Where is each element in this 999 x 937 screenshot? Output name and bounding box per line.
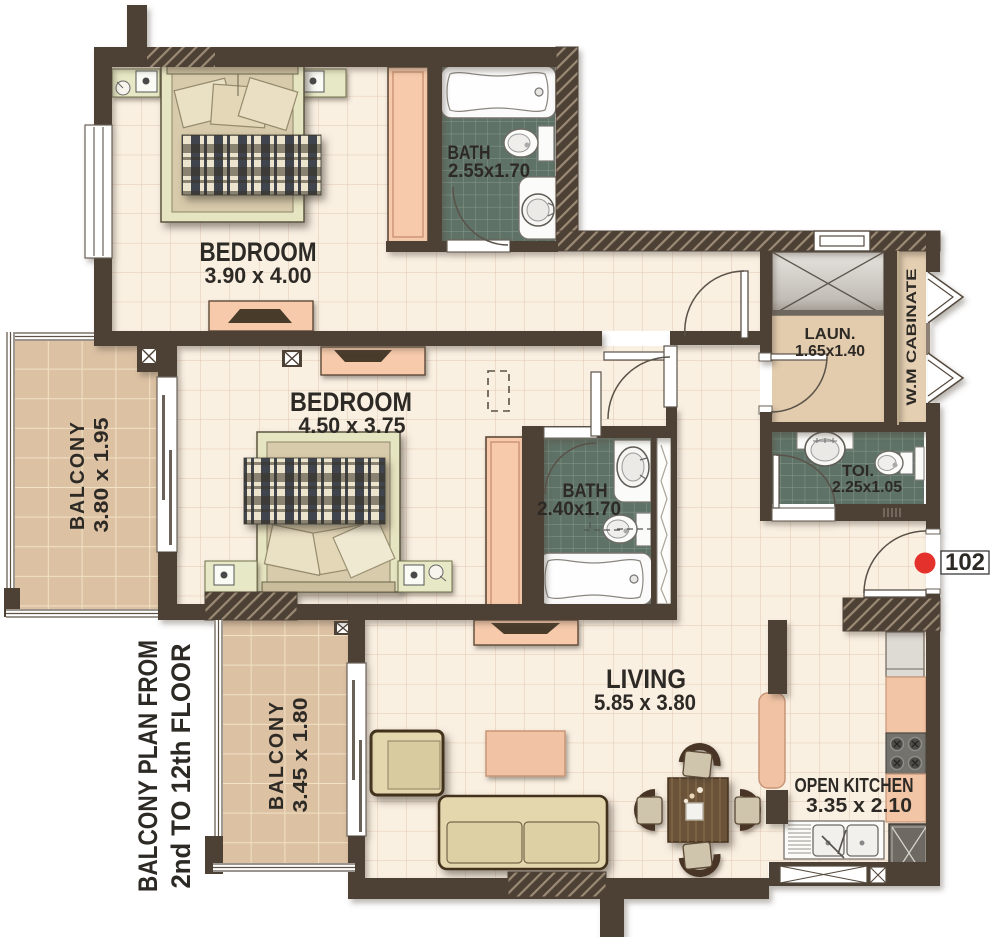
svg-text:BALCONY: BALCONY bbox=[67, 420, 89, 530]
svg-text:LAUN.: LAUN. bbox=[805, 326, 856, 343]
svg-text:TOI.: TOI. bbox=[842, 463, 874, 480]
svg-text:2nd TO 12th FLOOR: 2nd TO 12th FLOOR bbox=[166, 644, 196, 889]
svg-text:OPEN KITCHEN: OPEN KITCHEN bbox=[795, 775, 914, 797]
svg-text:2.55x1.70: 2.55x1.70 bbox=[448, 161, 530, 182]
svg-text:3.35 x 2.10: 3.35 x 2.10 bbox=[806, 795, 912, 817]
svg-text:BALCONY PLAN FROM: BALCONY PLAN FROM bbox=[133, 640, 163, 892]
svg-text:102: 102 bbox=[945, 549, 985, 576]
svg-text:W.M CABINATE: W.M CABINATE bbox=[904, 269, 919, 406]
svg-text:2.40x1.70: 2.40x1.70 bbox=[537, 499, 621, 520]
svg-text:3.90 x 4.00: 3.90 x 4.00 bbox=[205, 263, 312, 288]
svg-text:3.45 x 1.80: 3.45 x 1.80 bbox=[290, 698, 312, 813]
svg-text:3.80 x 1.95: 3.80 x 1.95 bbox=[91, 418, 113, 533]
svg-text:5.85 x 3.80: 5.85 x 3.80 bbox=[594, 690, 696, 715]
svg-text:2.25x1.05: 2.25x1.05 bbox=[832, 479, 902, 496]
svg-text:4.50 x 3.75: 4.50 x 3.75 bbox=[299, 413, 406, 438]
svg-text:BALCONY: BALCONY bbox=[266, 700, 288, 810]
svg-text:1.65x1.40: 1.65x1.40 bbox=[795, 343, 865, 360]
